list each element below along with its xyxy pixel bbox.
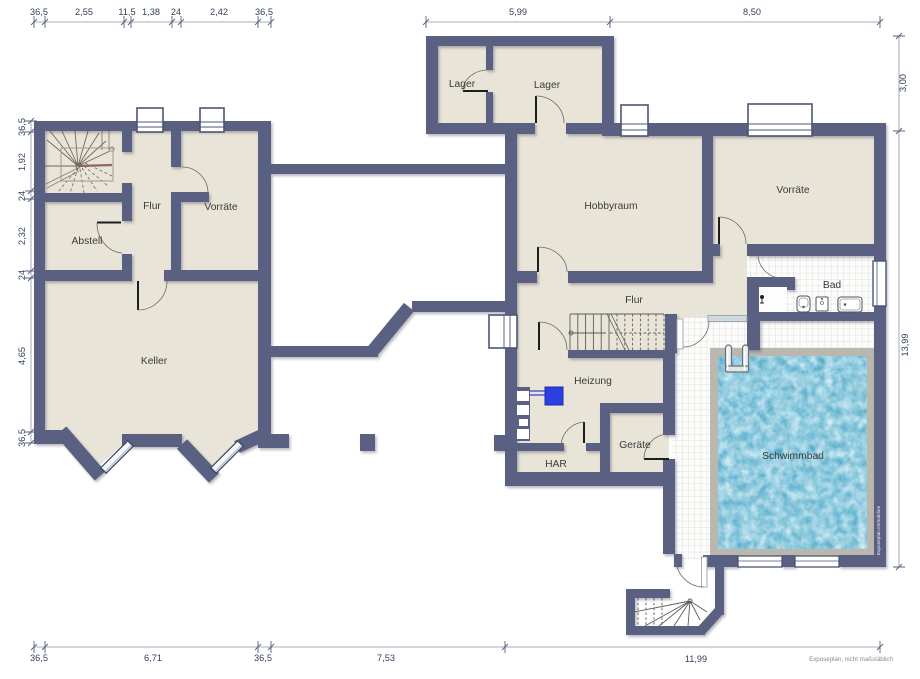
svg-text:11,5: 11,5 [118,7,135,17]
svg-text:Heizung: Heizung [574,376,612,387]
svg-text:11,99: 11,99 [685,654,707,664]
svg-text:1,92: 1,92 [17,153,27,171]
svg-text:HAR: HAR [545,459,567,470]
svg-text:36,5: 36,5 [30,653,48,663]
svg-text:36,5: 36,5 [254,653,272,663]
svg-text:2,55: 2,55 [75,7,93,17]
svg-text:5,99: 5,99 [509,7,527,17]
svg-text:13,99: 13,99 [900,334,910,357]
svg-text:Flur: Flur [143,201,161,212]
svg-text:36,5: 36,5 [17,118,27,136]
svg-text:Keller: Keller [141,356,168,367]
svg-text:36,5: 36,5 [17,429,27,447]
svg-text:36,5: 36,5 [30,7,48,17]
svg-text:Lager: Lager [449,79,476,90]
svg-text:4,65: 4,65 [17,347,27,365]
svg-text:Geräte: Geräte [619,440,651,451]
svg-text:2,42: 2,42 [210,7,228,17]
svg-text:24: 24 [17,191,27,201]
svg-text:Abstell: Abstell [72,236,103,247]
svg-text:Hobbyraum: Hobbyraum [584,201,637,212]
svg-text:6,71: 6,71 [144,653,162,663]
svg-text:1,38: 1,38 [142,7,160,17]
svg-text:36,5: 36,5 [255,7,273,17]
svg-text:Vorräte: Vorräte [204,202,237,213]
svg-text:Exposeplan.immobilien: Exposeplan.immobilien [876,505,881,555]
svg-text:8,50: 8,50 [743,7,761,17]
svg-text:2,32: 2,32 [17,227,27,245]
svg-text:Vorräte: Vorräte [776,185,809,196]
svg-text:Flur: Flur [625,295,643,306]
svg-text:24: 24 [171,7,181,17]
svg-text:Bad: Bad [823,280,842,291]
svg-text:Schwimmbad: Schwimmbad [762,451,824,462]
svg-text:24: 24 [17,270,27,280]
svg-text:7,53: 7,53 [377,653,395,663]
svg-text:3,00: 3,00 [898,74,908,92]
svg-text:Exposeplan, nicht maßstäblich: Exposeplan, nicht maßstäblich [809,656,893,663]
svg-text:Lager: Lager [534,80,561,91]
